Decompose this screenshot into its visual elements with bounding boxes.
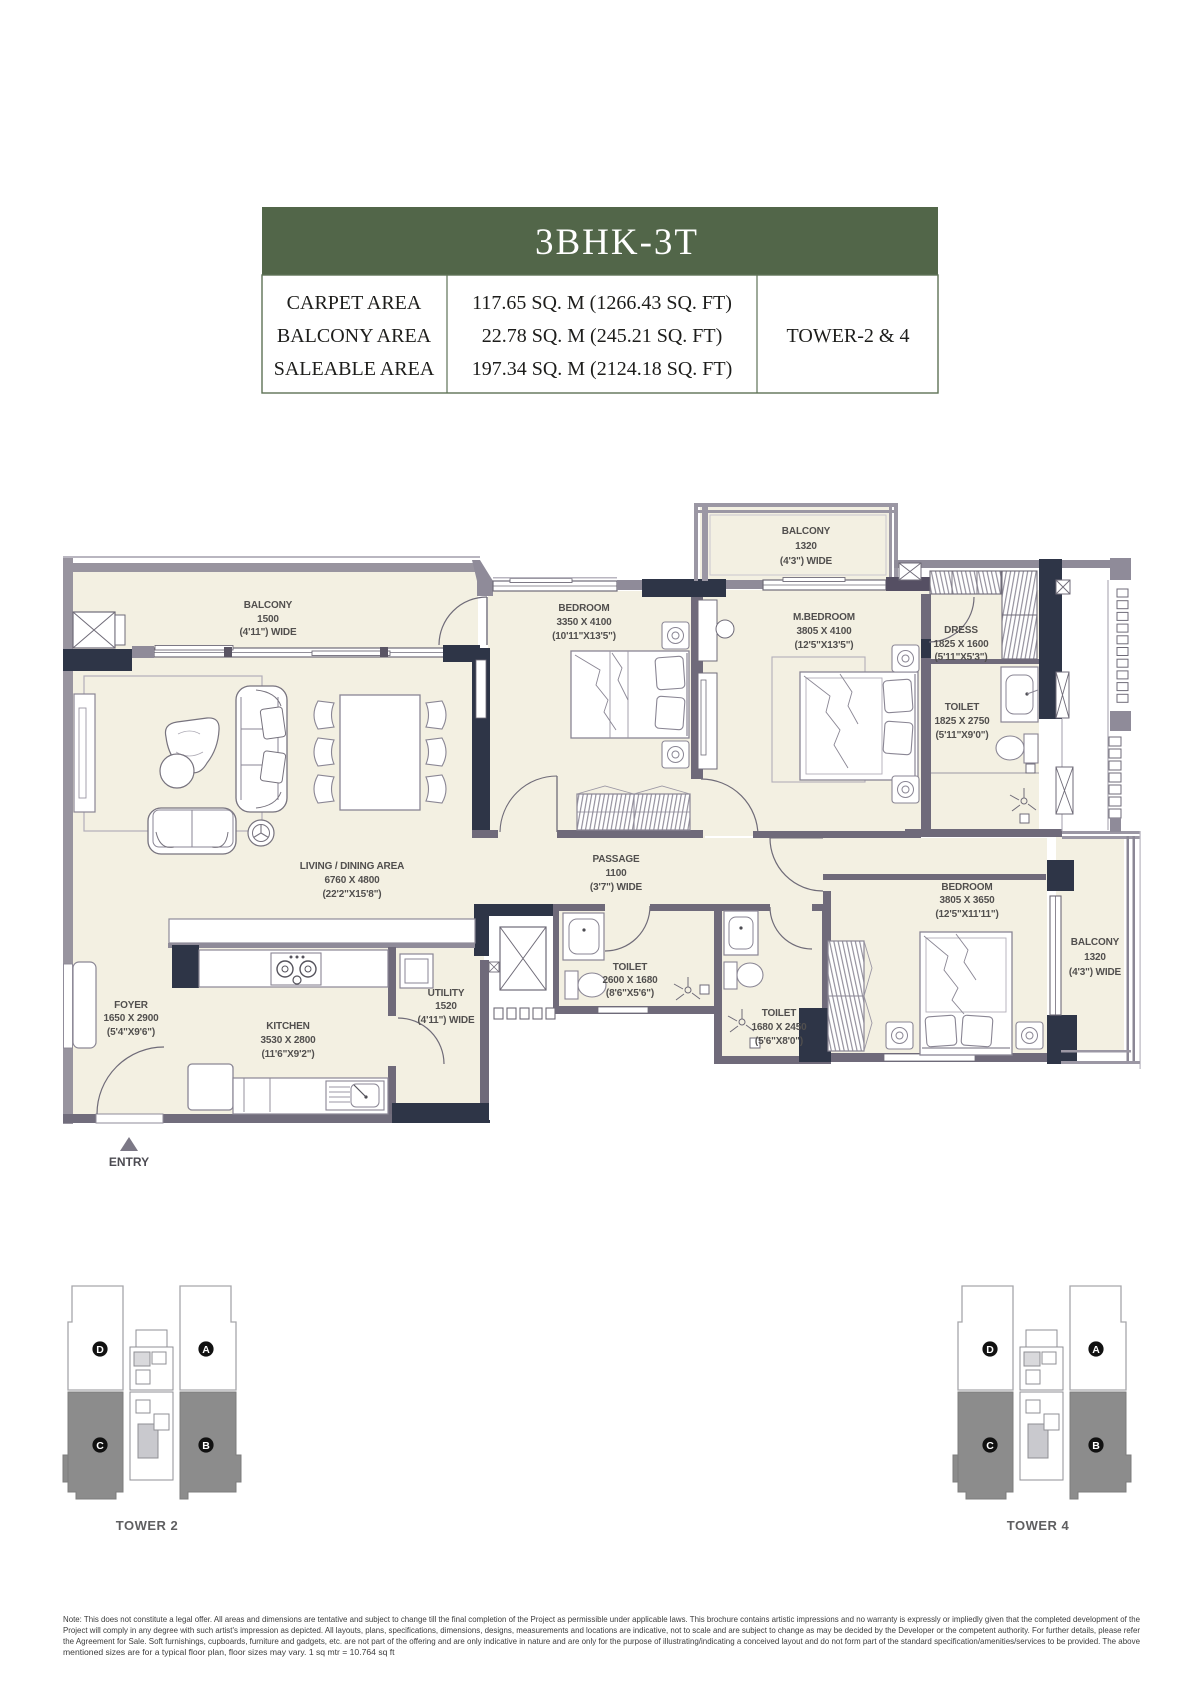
svg-text:3805 X 3650: 3805 X 3650 — [939, 895, 995, 906]
svg-text:(4'3") WIDE: (4'3") WIDE — [1069, 967, 1122, 978]
svg-text:FOYER: FOYER — [114, 1000, 149, 1011]
svg-text:B: B — [202, 1440, 210, 1452]
svg-text:3805 X 4100: 3805 X 4100 — [796, 626, 852, 637]
svg-text:BALCONY AREA: BALCONY AREA — [277, 325, 432, 347]
svg-text:(4'3") WIDE: (4'3") WIDE — [780, 556, 833, 567]
svg-text:22.78 SQ. M (245.21 SQ. FT): 22.78 SQ. M (245.21 SQ. FT) — [482, 325, 723, 347]
svg-text:C: C — [96, 1440, 104, 1452]
svg-text:2600 X 1680: 2600 X 1680 — [602, 975, 658, 986]
svg-text:KITCHEN: KITCHEN — [266, 1021, 309, 1032]
svg-text:M.BEDROOM: M.BEDROOM — [793, 612, 855, 623]
svg-text:3350 X 4100: 3350 X 4100 — [556, 617, 612, 628]
svg-text:TOILET: TOILET — [613, 962, 648, 973]
svg-text:(5'11"X9'0"): (5'11"X9'0") — [935, 730, 988, 741]
svg-text:1500: 1500 — [257, 614, 279, 625]
svg-text:TOWER 2: TOWER 2 — [116, 1518, 179, 1533]
svg-text:LIVING / DINING AREA: LIVING / DINING AREA — [300, 861, 404, 872]
svg-text:(11'6"X9'2"): (11'6"X9'2") — [261, 1049, 314, 1060]
svg-text:3BHK-3T: 3BHK-3T — [535, 222, 699, 263]
svg-text:(5'4"X9'6"): (5'4"X9'6") — [107, 1027, 155, 1038]
svg-text:3530 X 2800: 3530 X 2800 — [260, 1035, 316, 1046]
svg-text:A: A — [202, 1344, 210, 1356]
svg-text:DRESS: DRESS — [944, 625, 978, 636]
svg-text:BEDROOM: BEDROOM — [941, 882, 992, 893]
svg-text:(4'11") WIDE: (4'11") WIDE — [240, 627, 297, 638]
svg-text:1100: 1100 — [605, 868, 627, 879]
svg-text:mentioned sizes are for a typi: mentioned sizes are for a typical floor … — [63, 1647, 395, 1657]
svg-text:(22'2"X15'8"): (22'2"X15'8") — [323, 889, 382, 900]
svg-text:6760 X 4800: 6760 X 4800 — [324, 875, 380, 886]
svg-text:(12'5"X11'11"): (12'5"X11'11") — [935, 909, 998, 920]
svg-text:(10'11"X13'5"): (10'11"X13'5") — [552, 631, 616, 642]
svg-text:1680 X 2450: 1680 X 2450 — [751, 1022, 807, 1033]
svg-text:Project will comply in any deg: Project will comply in any degree with s… — [63, 1625, 1140, 1635]
svg-text:197.34 SQ. M (2124.18 SQ. FT): 197.34 SQ. M (2124.18 SQ. FT) — [472, 358, 733, 380]
svg-text:(4'11") WIDE: (4'11") WIDE — [418, 1015, 475, 1026]
svg-text:1320: 1320 — [795, 541, 817, 552]
svg-text:BEDROOM: BEDROOM — [558, 603, 609, 614]
svg-text:1520: 1520 — [435, 1001, 457, 1012]
svg-text:TOILET: TOILET — [762, 1008, 797, 1019]
svg-text:(12'5"X13'5"): (12'5"X13'5") — [795, 640, 854, 651]
svg-text:1320: 1320 — [1084, 952, 1106, 963]
svg-text:1650 X 2900: 1650 X 2900 — [103, 1013, 159, 1024]
svg-text:UTILITY: UTILITY — [428, 988, 465, 999]
svg-text:the Agreement for Sale. Soft f: the Agreement for Sale. Soft furnishings… — [63, 1636, 1140, 1646]
svg-text:TOILET: TOILET — [945, 702, 980, 713]
svg-text:TOWER 4: TOWER 4 — [1007, 1518, 1070, 1533]
svg-text:CARPET AREA: CARPET AREA — [287, 292, 422, 314]
svg-text:BALCONY: BALCONY — [1071, 937, 1120, 948]
svg-text:(8'6"X5'6"): (8'6"X5'6") — [606, 988, 654, 999]
svg-text:1825 X 2750: 1825 X 2750 — [934, 716, 990, 727]
svg-text:BALCONY: BALCONY — [244, 600, 293, 611]
svg-text:ENTRY: ENTRY — [109, 1155, 149, 1169]
svg-text:(5'11"X5'3"): (5'11"X5'3") — [934, 652, 987, 663]
svg-text:D: D — [96, 1344, 104, 1356]
svg-text:TOWER-2 & 4: TOWER-2 & 4 — [787, 325, 910, 347]
svg-text:SALEABLE AREA: SALEABLE AREA — [274, 358, 435, 380]
svg-text:BALCONY: BALCONY — [782, 526, 831, 537]
svg-text:Note: This does not constitute: Note: This does not constitute a legal o… — [63, 1614, 1140, 1624]
svg-text:117.65 SQ. M (1266.43 SQ. FT): 117.65 SQ. M (1266.43 SQ. FT) — [472, 292, 732, 314]
svg-text:(3'7") WIDE: (3'7") WIDE — [590, 882, 643, 893]
svg-text:PASSAGE: PASSAGE — [592, 854, 640, 865]
svg-text:1825 X 1600: 1825 X 1600 — [933, 639, 989, 650]
svg-text:(5'6"X8'0"): (5'6"X8'0") — [755, 1036, 803, 1047]
